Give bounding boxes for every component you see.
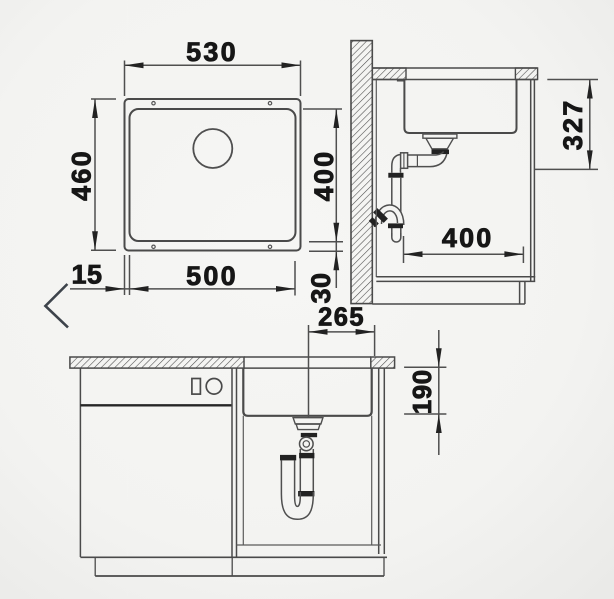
svg-text:530: 530	[186, 37, 238, 67]
svg-text:30: 30	[306, 272, 336, 303]
svg-text:15: 15	[71, 260, 102, 290]
svg-text:265: 265	[318, 304, 365, 332]
svg-text:500: 500	[186, 261, 238, 291]
svg-text:327: 327	[558, 99, 588, 151]
svg-text:400: 400	[442, 223, 494, 253]
svg-text:460: 460	[67, 149, 97, 201]
svg-text:400: 400	[309, 150, 339, 202]
svg-text:190: 190	[407, 369, 437, 414]
